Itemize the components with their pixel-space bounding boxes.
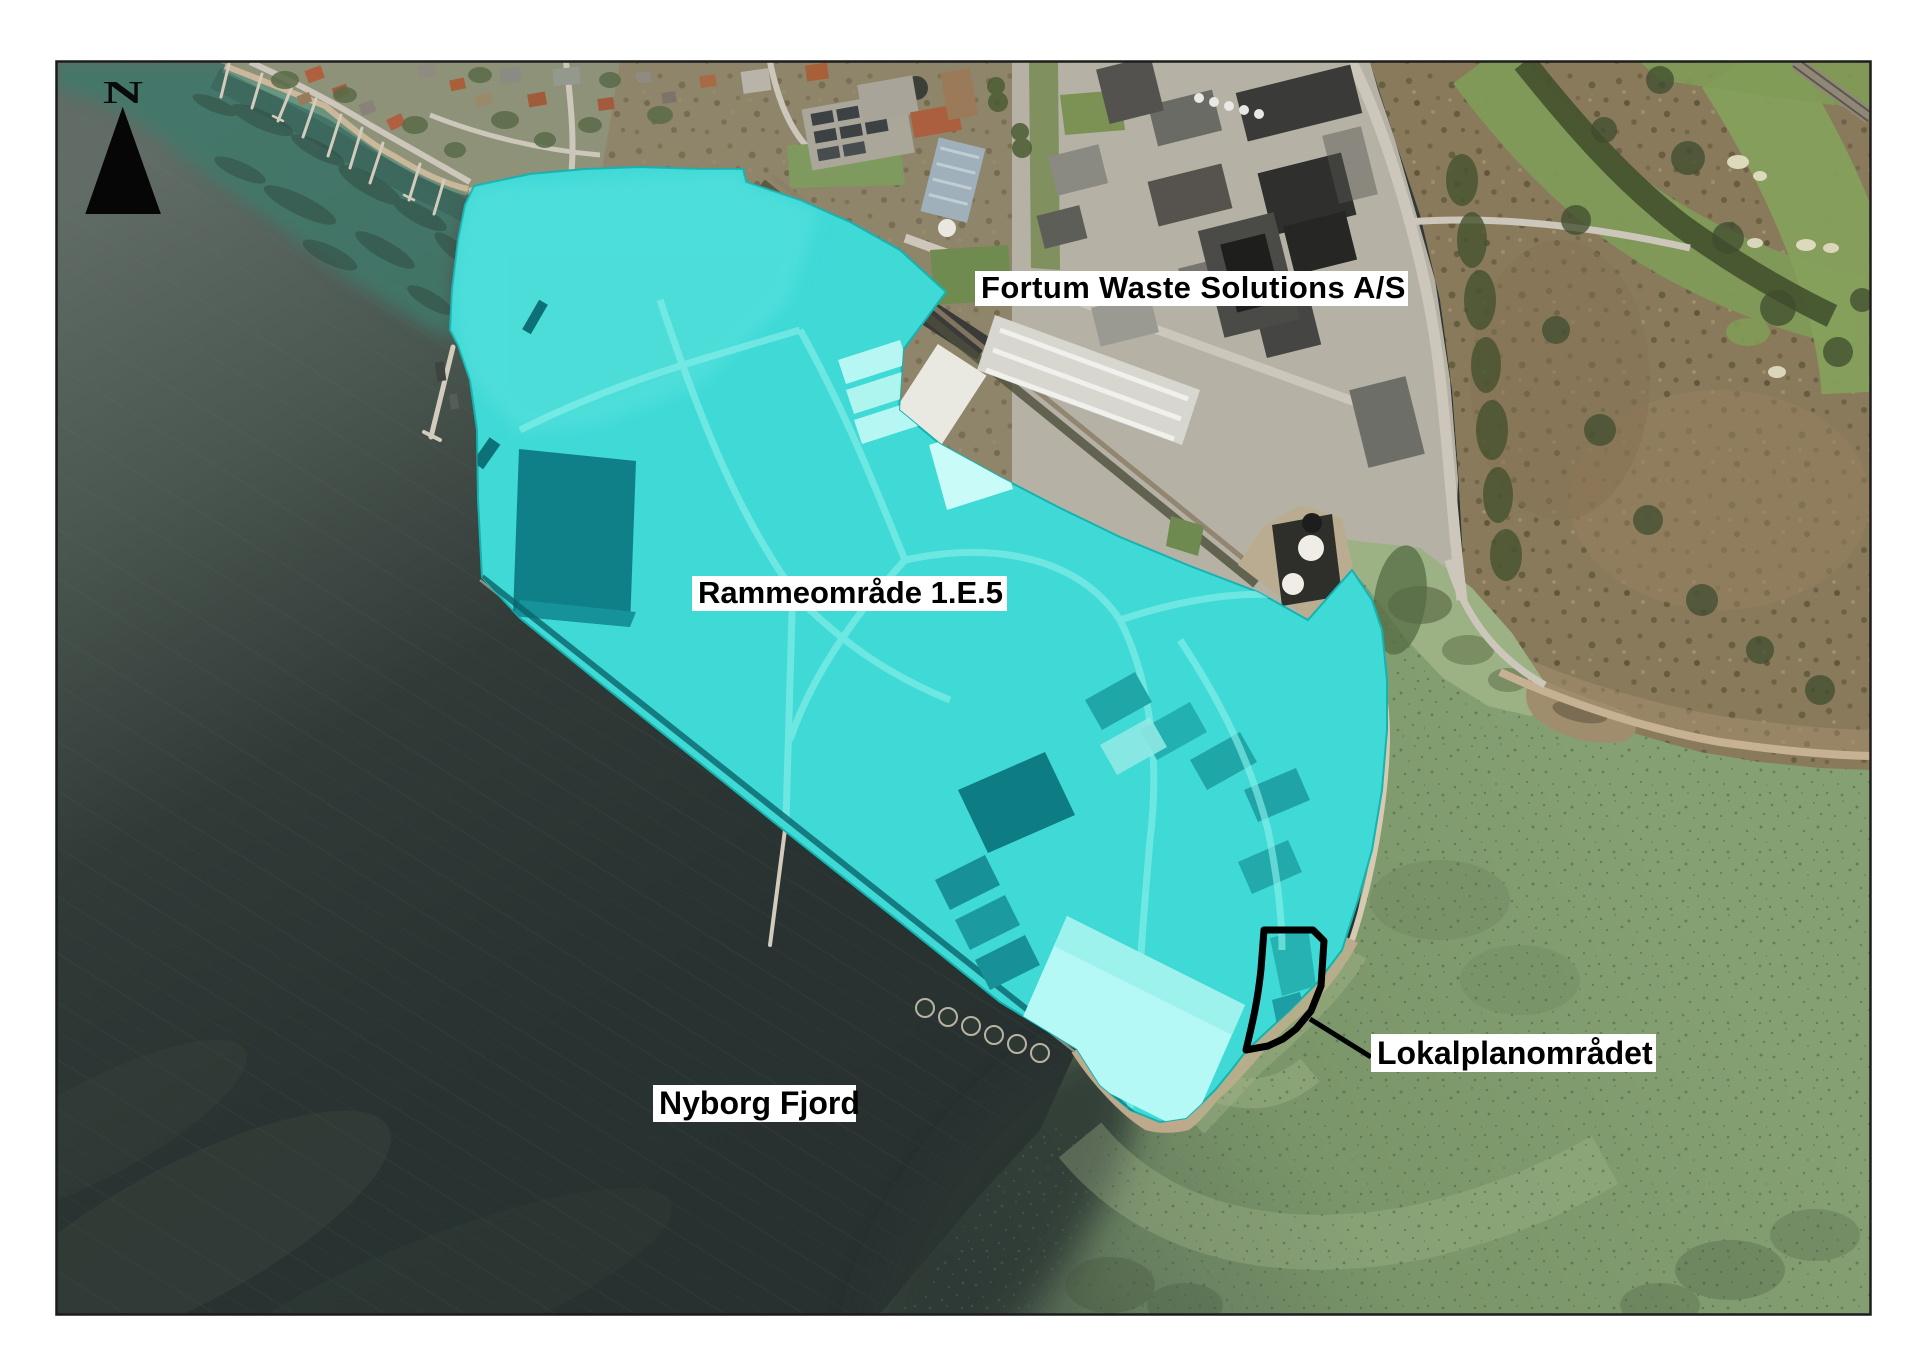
svg-text:Lokalplanområdet: Lokalplanområdet bbox=[1377, 1035, 1653, 1071]
svg-text:Rammeområde 1.E.5: Rammeområde 1.E.5 bbox=[698, 575, 1003, 610]
svg-text:Fortum Waste Solutions A/S: Fortum Waste Solutions A/S bbox=[981, 270, 1406, 305]
svg-text:Nyborg Fjord: Nyborg Fjord bbox=[659, 1085, 860, 1121]
svg-text:N: N bbox=[103, 74, 144, 110]
